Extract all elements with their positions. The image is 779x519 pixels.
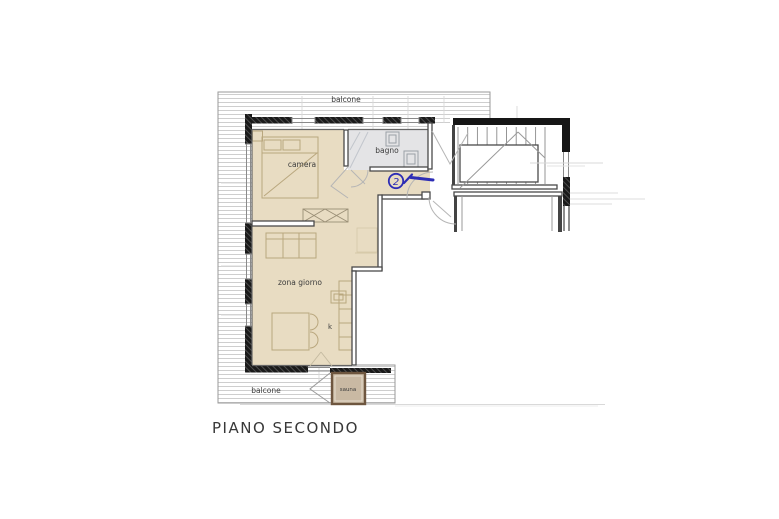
balcone-bottom-label: balcone — [251, 386, 281, 395]
annotation-number: 2 — [393, 177, 399, 188]
balcone-top-label: balcone — [331, 95, 361, 104]
zona-giorno-label: zona giorno — [278, 278, 322, 287]
sauna-label: sauna — [340, 387, 357, 393]
plan-title: PIANO SECONDO — [212, 419, 359, 437]
bagno-label: bagno — [375, 146, 399, 155]
camera-label: camera — [288, 160, 316, 169]
floor-plan-page: balcone camera bagno zona giorno k sauna… — [0, 0, 779, 519]
floor-plan-svg: balcone camera bagno zona giorno k sauna… — [0, 0, 779, 519]
